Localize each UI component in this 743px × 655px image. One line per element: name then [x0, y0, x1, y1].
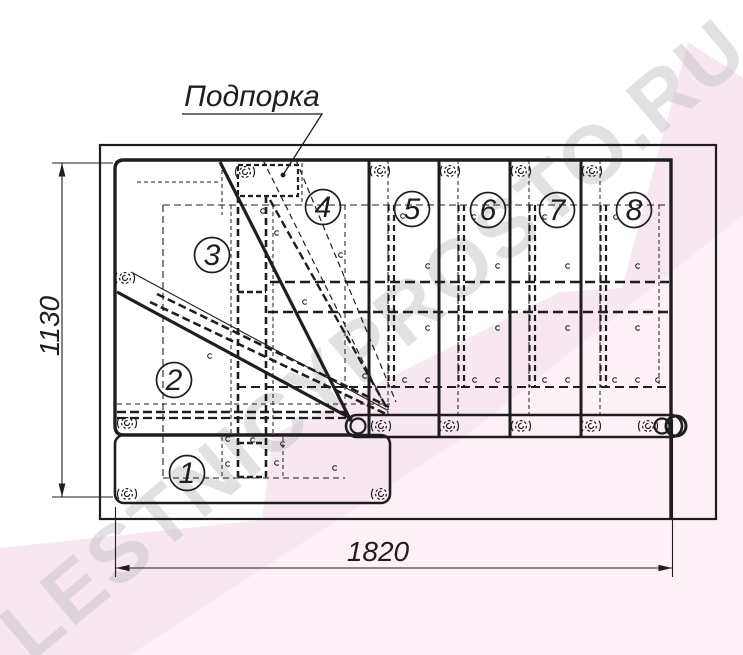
- step-number-6: 6: [480, 194, 497, 227]
- screw-icon: [115, 273, 134, 284]
- step-number-3: 3: [204, 239, 221, 272]
- screw-icon: [440, 166, 459, 177]
- support-callout-label: Подпорка: [184, 80, 320, 113]
- arrow-down-icon: [59, 484, 66, 498]
- step-number-1: 1: [179, 457, 196, 490]
- arrow-up-icon: [59, 163, 66, 177]
- height-dimension-label: 1130: [34, 295, 65, 356]
- width-dimension-label: 1820: [347, 536, 410, 567]
- step-number-8: 8: [626, 194, 643, 227]
- step-number-4: 4: [315, 191, 332, 224]
- screw-icon: [117, 418, 136, 429]
- staircase-plan-svg: LESTNICYPROSTO.RU: [0, 0, 743, 655]
- screw-icon: [370, 166, 389, 177]
- leader-dot: [281, 173, 286, 178]
- staircase-plan-drawing: LESTNICYPROSTO.RU: [0, 0, 743, 655]
- step-number-5: 5: [404, 193, 421, 226]
- step-number-7: 7: [549, 194, 567, 227]
- step-number-2: 2: [165, 364, 183, 397]
